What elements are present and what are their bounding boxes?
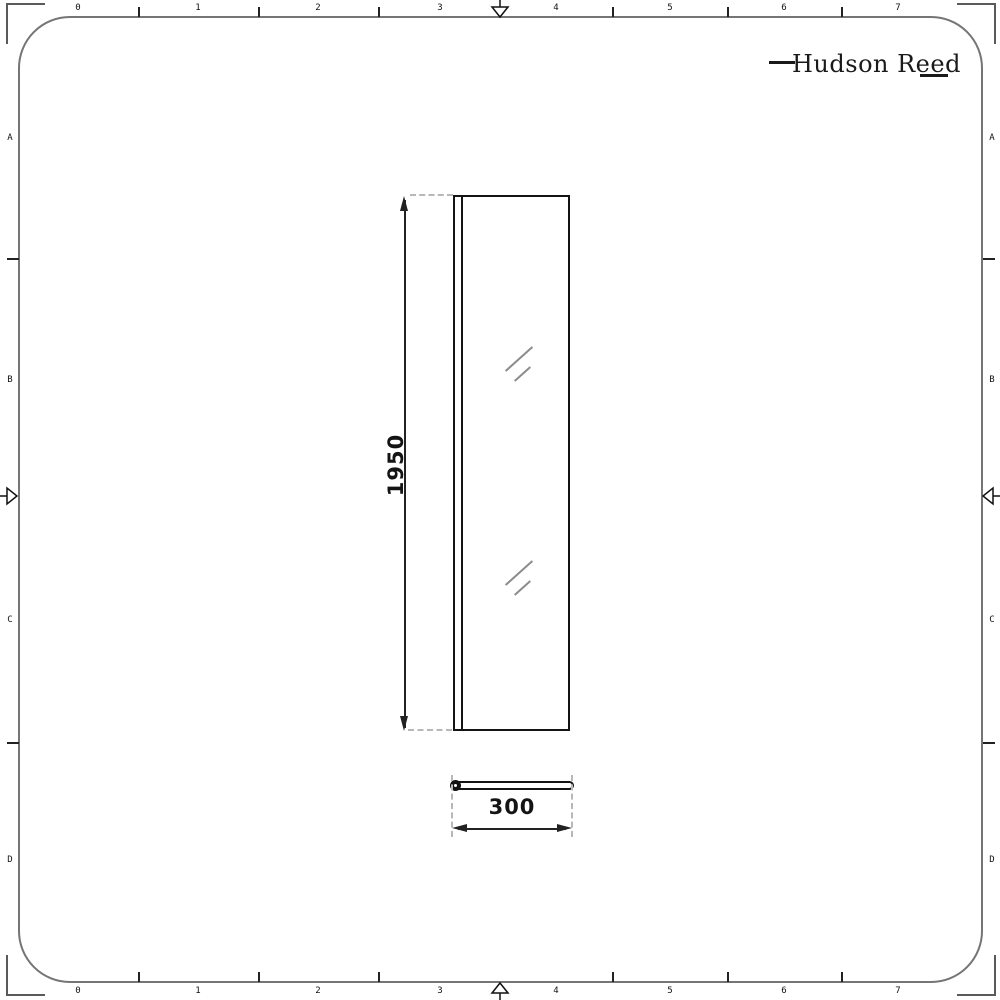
ruler-number-top: 7 (890, 2, 906, 14)
plan-view-outline (454, 781, 574, 790)
height-dimension-label: 1950 (383, 415, 409, 515)
dimension-arrow-down-icon (400, 716, 408, 731)
ruler-number-bottom: 5 (662, 985, 678, 997)
ruler-number-top: 0 (70, 2, 86, 14)
logo-trailing-underscore (920, 74, 948, 77)
center-mark-top-icon (487, 0, 513, 20)
ruler-number-bottom: 2 (310, 985, 326, 997)
center-mark-bottom-icon (487, 980, 513, 1000)
plan-view-hinge-center (454, 784, 457, 787)
center-mark-left-icon (0, 483, 20, 509)
ruler-tick-left (7, 742, 19, 744)
corner-mark-bottom-left (6, 955, 45, 996)
front-view-outline (453, 195, 570, 731)
extension-line-bottom (408, 729, 452, 731)
ruler-number-bottom: 0 (70, 985, 86, 997)
ruler-tick-right (983, 742, 995, 744)
width-dimension-line (458, 828, 566, 830)
ruler-letter-right: B (986, 374, 998, 386)
ruler-tick-bottom (258, 972, 260, 982)
ruler-number-bottom: 4 (548, 985, 564, 997)
ruler-number-top: 1 (190, 2, 206, 14)
ruler-number-bottom: 1 (190, 985, 206, 997)
corner-mark-top-right (957, 3, 996, 44)
ruler-letter-right: A (986, 132, 998, 144)
corner-mark-bottom-right (957, 955, 996, 996)
ruler-tick-top (841, 7, 843, 17)
width-dimension-label: 300 (472, 795, 552, 819)
corner-mark-top-left (6, 3, 45, 44)
ruler-letter-right: D (986, 854, 998, 866)
ruler-letter-left: A (4, 132, 16, 144)
ruler-tick-bottom (841, 972, 843, 982)
center-mark-right-icon (980, 483, 1000, 509)
ruler-tick-right (983, 258, 995, 260)
ruler-letter-left: B (4, 374, 16, 386)
ruler-tick-bottom (612, 972, 614, 982)
ruler-tick-bottom (378, 972, 380, 982)
ruler-tick-top (378, 7, 380, 17)
dimension-arrow-left-icon (452, 824, 467, 832)
ruler-tick-bottom (727, 972, 729, 982)
ruler-tick-top (138, 7, 140, 17)
dimension-arrow-right-icon (557, 824, 572, 832)
ruler-number-top: 3 (432, 2, 448, 14)
ruler-tick-top (612, 7, 614, 17)
ruler-number-bottom: 3 (432, 985, 448, 997)
ruler-tick-left (7, 258, 19, 260)
ruler-number-bottom: 6 (776, 985, 792, 997)
front-view-side-edge-line (461, 196, 463, 730)
ruler-number-top: 6 (776, 2, 792, 14)
ruler-tick-top (727, 7, 729, 17)
ruler-number-bottom: 7 (890, 985, 906, 997)
ruler-number-top: 2 (310, 2, 326, 14)
extension-line-top (410, 194, 453, 196)
ruler-letter-left: C (4, 614, 16, 626)
ruler-letter-left: D (4, 854, 16, 866)
ruler-tick-top (258, 7, 260, 17)
ruler-tick-bottom (138, 972, 140, 982)
ruler-number-top: 5 (662, 2, 678, 14)
dimension-arrow-up-icon (400, 196, 408, 211)
ruler-number-top: 4 (548, 2, 564, 14)
drawing-sheet: 0011223344556677AABBCCDD Hudson Reed 195… (0, 0, 1000, 1000)
ruler-letter-right: C (986, 614, 998, 626)
